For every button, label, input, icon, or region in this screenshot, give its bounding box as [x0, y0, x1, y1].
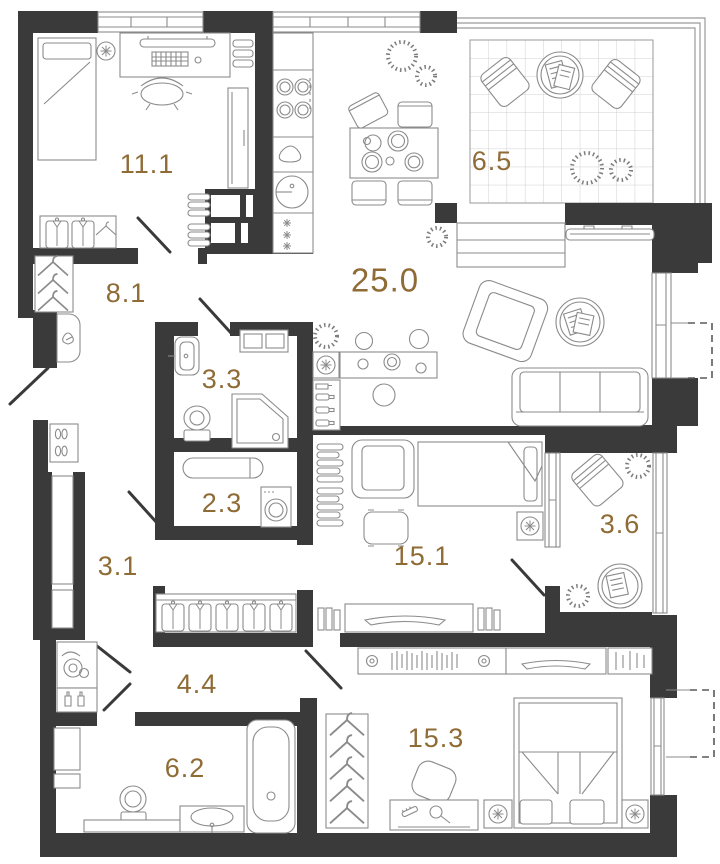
coat-hangers-icon — [35, 256, 73, 312]
desk-icon — [120, 33, 230, 77]
vacuum-closet-icon — [57, 642, 97, 712]
armchair-icon — [460, 278, 550, 365]
room-label-bathroom-2: 6.2 — [165, 753, 206, 783]
toilet-2-icon — [120, 786, 146, 823]
bar-stool-icon — [356, 333, 373, 350]
window-living — [652, 273, 671, 378]
floor-plan-drawing: 11.1 8.1 25.0 6.5 3.3 2.3 3.1 15.1 3.6 4… — [0, 0, 720, 864]
radiator-icon — [566, 226, 654, 240]
room-label-bedroom-3: 15.3 — [408, 723, 465, 753]
window-bedroom-1 — [98, 12, 203, 32]
pouf-icon — [409, 758, 460, 806]
water-heater-icon — [183, 458, 263, 478]
kitchen-counter-icon — [273, 33, 313, 253]
plant-icon — [428, 228, 446, 246]
single-bed-icon — [38, 38, 96, 160]
door-bathroom-1 — [200, 299, 231, 333]
wardrobe-shirts-icon — [156, 594, 296, 632]
window-bedroom-2-balcony — [545, 453, 560, 547]
room-label-kitchen-living: 25.0 — [351, 262, 419, 299]
nightstand-3-icon — [622, 800, 648, 828]
room-label-bedroom-1: 11.1 — [120, 149, 175, 179]
bar-stool-icon — [373, 384, 395, 406]
double-bed-icon — [514, 698, 622, 828]
shoe-rack-icon — [50, 424, 78, 462]
terrace-table-icon — [537, 52, 583, 98]
door-closet — [97, 646, 130, 672]
room-label-hallway: 8.1 — [106, 278, 147, 308]
door-laundry — [129, 492, 158, 524]
balcony-table-icon — [598, 564, 642, 608]
balcony-chair-icon — [569, 452, 625, 509]
speaker-icon — [313, 352, 339, 378]
plant-icon — [568, 586, 588, 606]
room-label-balcony: 3.6 — [600, 509, 641, 539]
toilet-icon — [184, 406, 210, 441]
armchair-2-icon — [352, 440, 414, 498]
door-bedroom-3 — [306, 651, 341, 688]
tv-dresser-icon — [506, 648, 606, 674]
pillow — [520, 800, 552, 824]
nightstand-2-icon — [484, 800, 512, 828]
bath-shelf-icon — [240, 330, 288, 352]
room-label-corridor-1: 3.1 — [98, 551, 139, 581]
dashed-bracket-bottom — [666, 690, 714, 757]
door-balcony — [512, 560, 544, 595]
room-label-bedroom-2: 15.1 — [394, 541, 451, 571]
bar-counter-icon — [340, 330, 437, 407]
sofa-icon — [512, 368, 648, 426]
door-entry — [10, 368, 48, 404]
room-label-corridor-2: 4.4 — [177, 669, 218, 699]
single-bed-2-icon — [418, 442, 542, 506]
clothes-rack-icon — [40, 216, 116, 248]
coffee-table-icon — [556, 298, 604, 346]
plant-icon — [627, 455, 649, 477]
terrace-door-sill — [457, 223, 565, 267]
dressing-table-icon — [390, 800, 478, 830]
bar-stool-icon — [410, 330, 429, 349]
console-icon — [57, 314, 80, 362]
plant-icon — [388, 42, 416, 70]
dresser-cosmetics-icon — [358, 648, 506, 674]
door-bathroom-2 — [104, 684, 130, 710]
office-chair-icon — [132, 78, 192, 110]
room-label-bathroom-1: 3.3 — [202, 364, 243, 394]
floor-lamp-icon — [97, 42, 115, 60]
perfume-shelf-icon — [608, 648, 652, 674]
bookshelf-icon — [317, 444, 343, 526]
dashed-bracket-top — [671, 323, 712, 378]
wardrobe-hangers-icon — [326, 713, 368, 828]
wardrobe-panel-icon — [228, 88, 248, 188]
pillow — [570, 800, 604, 824]
bathtub-icon — [247, 720, 295, 833]
window-bedroom-3 — [651, 698, 664, 795]
dining-table-icon — [350, 128, 438, 178]
shower-icon — [232, 394, 288, 448]
window-kitchen — [273, 12, 420, 32]
plant-icon — [417, 67, 435, 85]
window-balcony-right — [653, 453, 667, 613]
vanity-icon — [84, 806, 244, 833]
plant-icon — [315, 325, 337, 347]
washing-machine-icon — [261, 487, 291, 527]
kitchen-sink-icon — [276, 176, 308, 208]
nightstand-icon — [517, 512, 543, 540]
tv-console-icon — [318, 604, 500, 632]
wine-rack-icon — [313, 380, 340, 430]
floor-plan-page: 11.1 8.1 25.0 6.5 3.3 2.3 3.1 15.1 3.6 4… — [0, 0, 720, 864]
room-label-laundry: 2.3 — [202, 488, 243, 518]
room-label-terrace: 6.5 — [472, 146, 513, 176]
door-bedroom-1 — [138, 218, 170, 252]
